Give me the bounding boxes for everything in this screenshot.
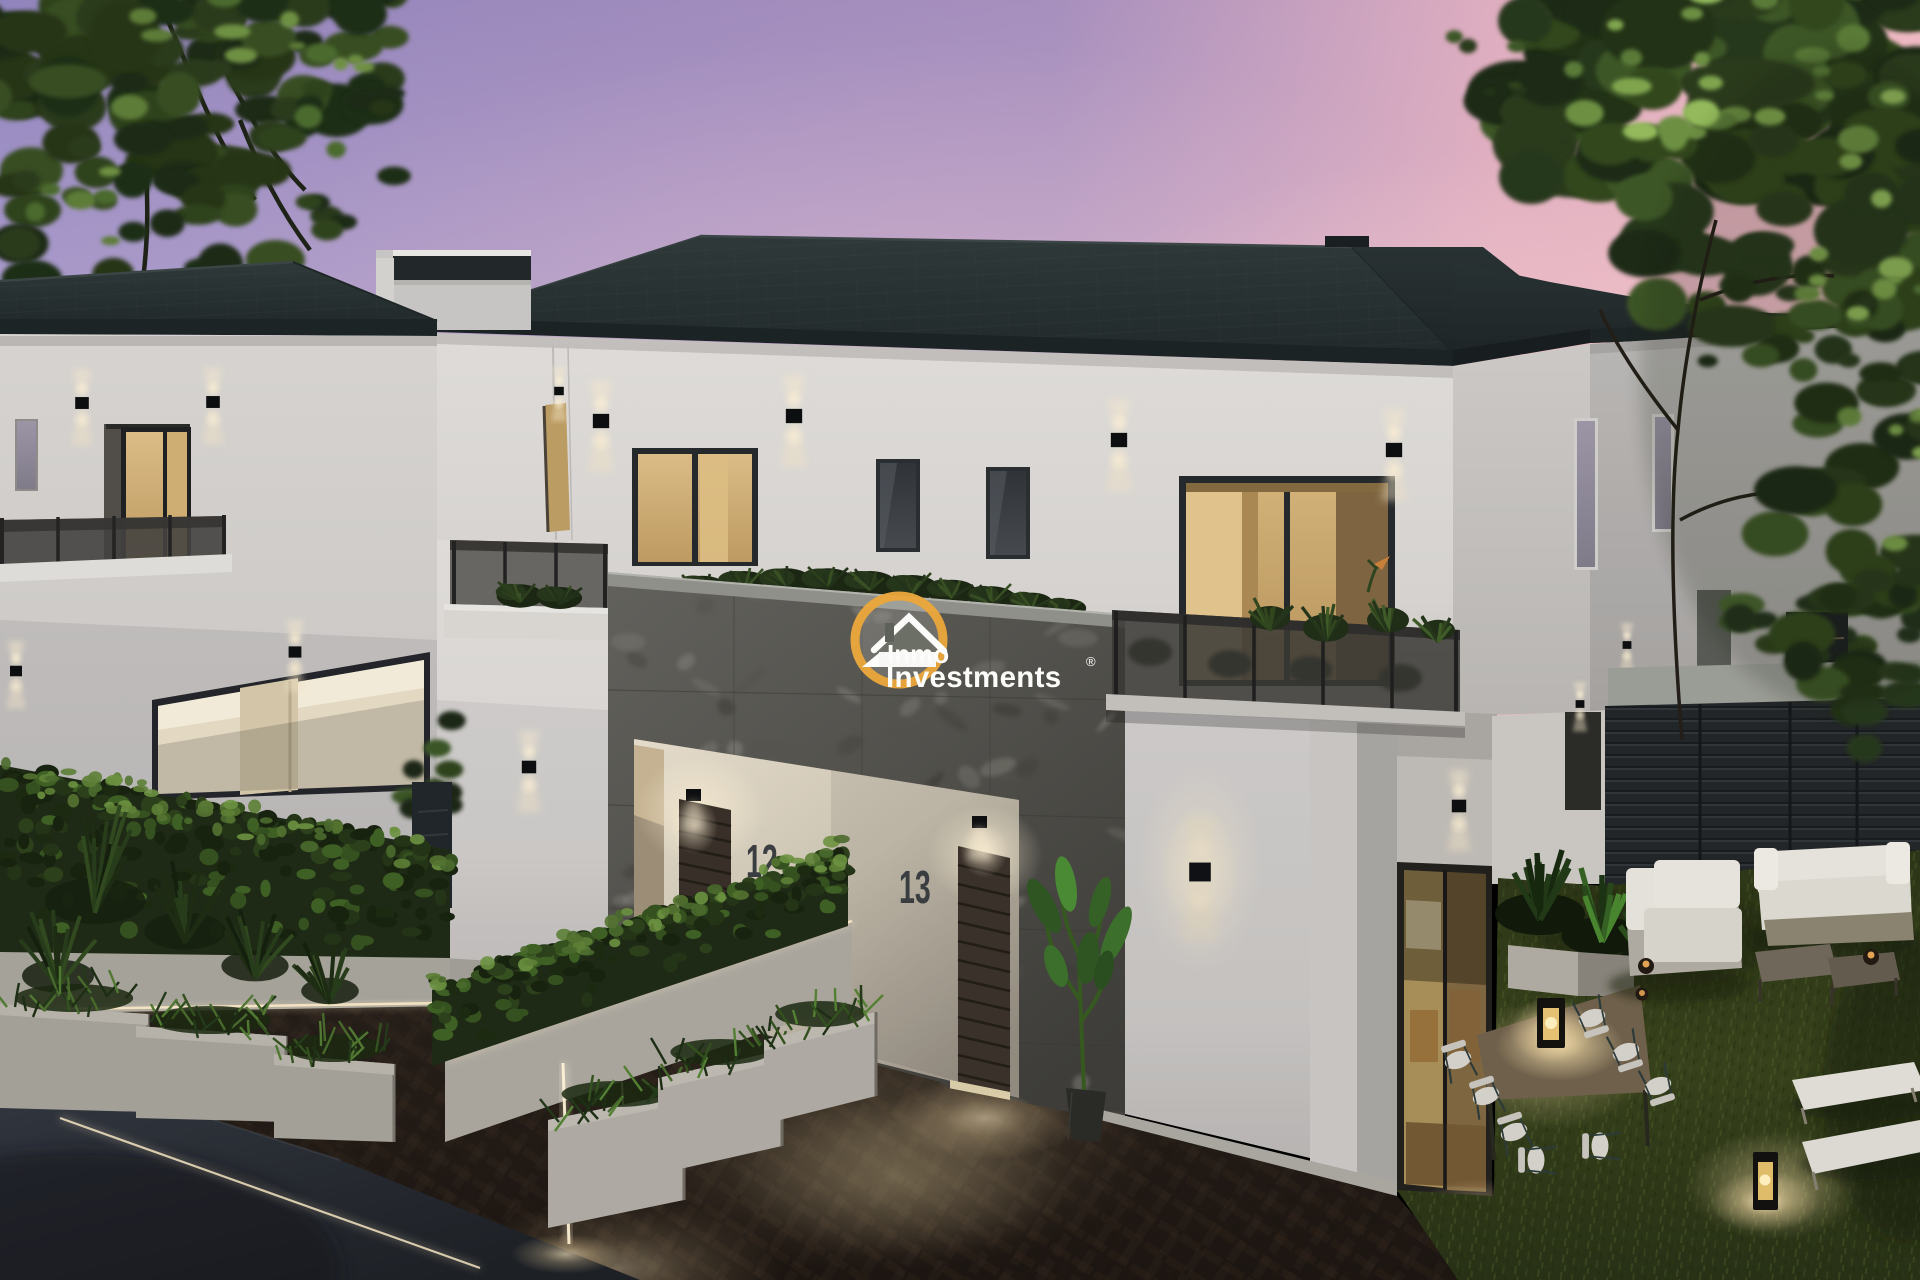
- svg-text:13: 13: [899, 862, 931, 914]
- svg-text:Investments: Investments: [886, 661, 1061, 694]
- svg-text:®: ®: [1086, 654, 1096, 669]
